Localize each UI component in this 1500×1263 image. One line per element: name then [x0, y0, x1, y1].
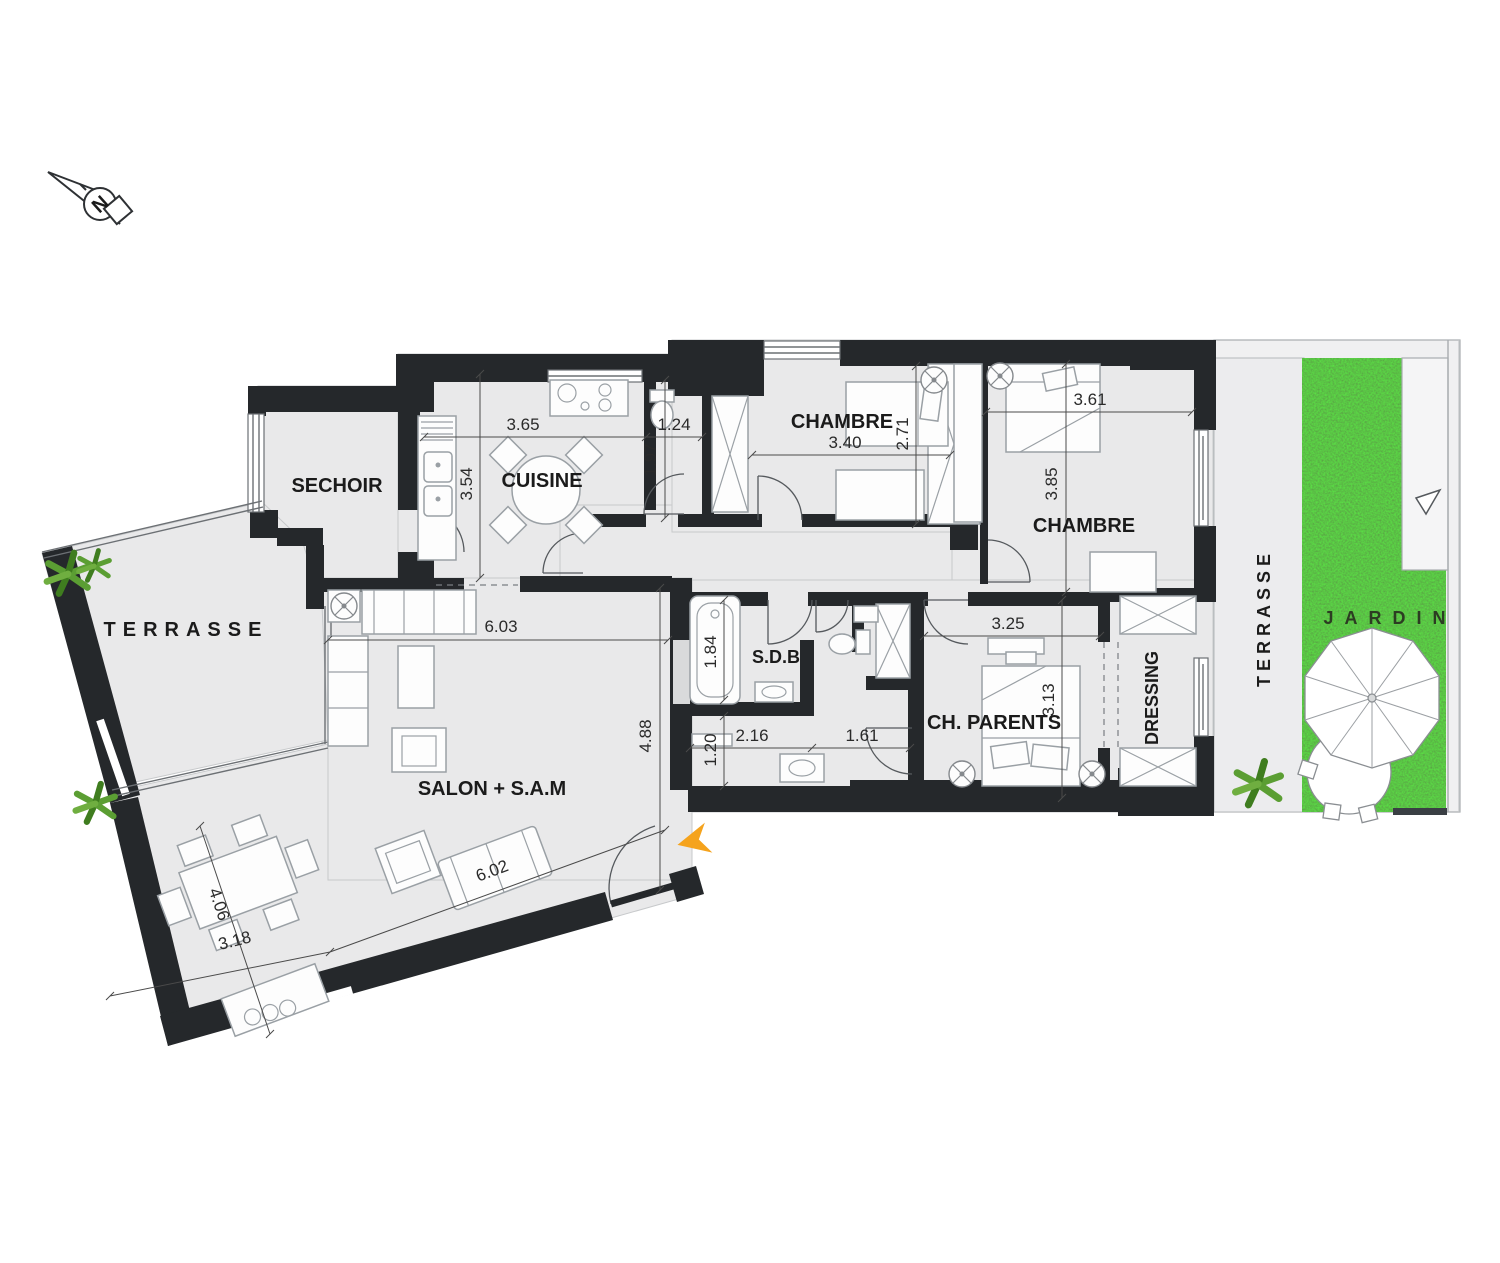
label-dressing: DRESSING: [1142, 651, 1162, 745]
dim-cuisine-h: 3.54: [457, 467, 476, 500]
wc-toilet: [829, 634, 855, 654]
dim-wc-h: 1.97: [641, 443, 660, 476]
wc-tank: [856, 630, 870, 654]
label-sechoir: SECHOIR: [291, 475, 383, 497]
dim-wc-w: 1.24: [657, 415, 690, 434]
label-terrasse-left: TERRASSE: [104, 619, 269, 641]
dim-cuisine-w: 3.65: [506, 415, 539, 434]
toilet-tank: [650, 390, 674, 402]
dim-chambre1-h: 2.71: [893, 417, 912, 450]
wc-sink: [854, 606, 878, 622]
sdb-sink: [755, 682, 793, 702]
label-ch-parents: CH. PARENTS: [927, 712, 1061, 734]
pillow: [991, 742, 1030, 769]
north-compass-icon: N: [48, 172, 132, 224]
speaker-icon: [331, 593, 357, 619]
sofa-left: [328, 636, 368, 746]
label-chambre2: CHAMBRE: [1033, 515, 1135, 537]
desk-chambre1: [836, 470, 924, 520]
bedside-lamp-icon: [1079, 761, 1105, 787]
label-sdb: S.D.B: [752, 647, 800, 667]
dim-chambre2-w: 3.61: [1073, 390, 1106, 409]
jardin-path-strip: [1402, 358, 1448, 570]
shaft: [673, 640, 690, 704]
grass-bottom-edge: [1393, 808, 1447, 815]
label-salon: SALON + S.A.M: [418, 778, 566, 800]
bench: [1006, 652, 1036, 664]
bedside-lamp-icon: [949, 761, 975, 787]
dim-hall-h: 1.20: [701, 733, 720, 766]
hall-console: [780, 754, 824, 782]
dim-chambre1-w: 3.40: [828, 433, 861, 452]
dim-hall-w2: 1.61: [845, 726, 878, 745]
label-jardin: JARDIN: [1323, 608, 1456, 628]
pillow: [920, 389, 942, 421]
coffee-table: [398, 646, 434, 708]
floor-plan-page: N 3.65 1.24 3.54 1.97 3.40 2.71 3.61 3.8…: [0, 0, 1500, 1263]
ceiling-light-icon: [987, 363, 1013, 389]
dim-salon-w: 6.03: [484, 617, 517, 636]
desk-chambre2: [1090, 552, 1156, 592]
dim-parents-w: 3.25: [991, 614, 1024, 633]
floor-plan-canvas: N 3.65 1.24 3.54 1.97 3.40 2.71 3.61 3.8…: [0, 0, 1500, 1263]
dim-sdb-h: 1.84: [701, 635, 720, 668]
sofa-top: [362, 590, 476, 634]
label-terrasse-right: TERRASSE: [1254, 549, 1274, 687]
ceiling-light-icon: [921, 367, 947, 393]
label-chambre1: CHAMBRE: [791, 411, 893, 433]
dim-salon-h: 4.88: [636, 719, 655, 752]
dim-hall-w1: 2.16: [735, 726, 768, 745]
pillow: [1031, 744, 1069, 770]
dim-chambre2-h: 3.85: [1042, 467, 1061, 500]
label-cuisine: CUISINE: [501, 470, 582, 492]
